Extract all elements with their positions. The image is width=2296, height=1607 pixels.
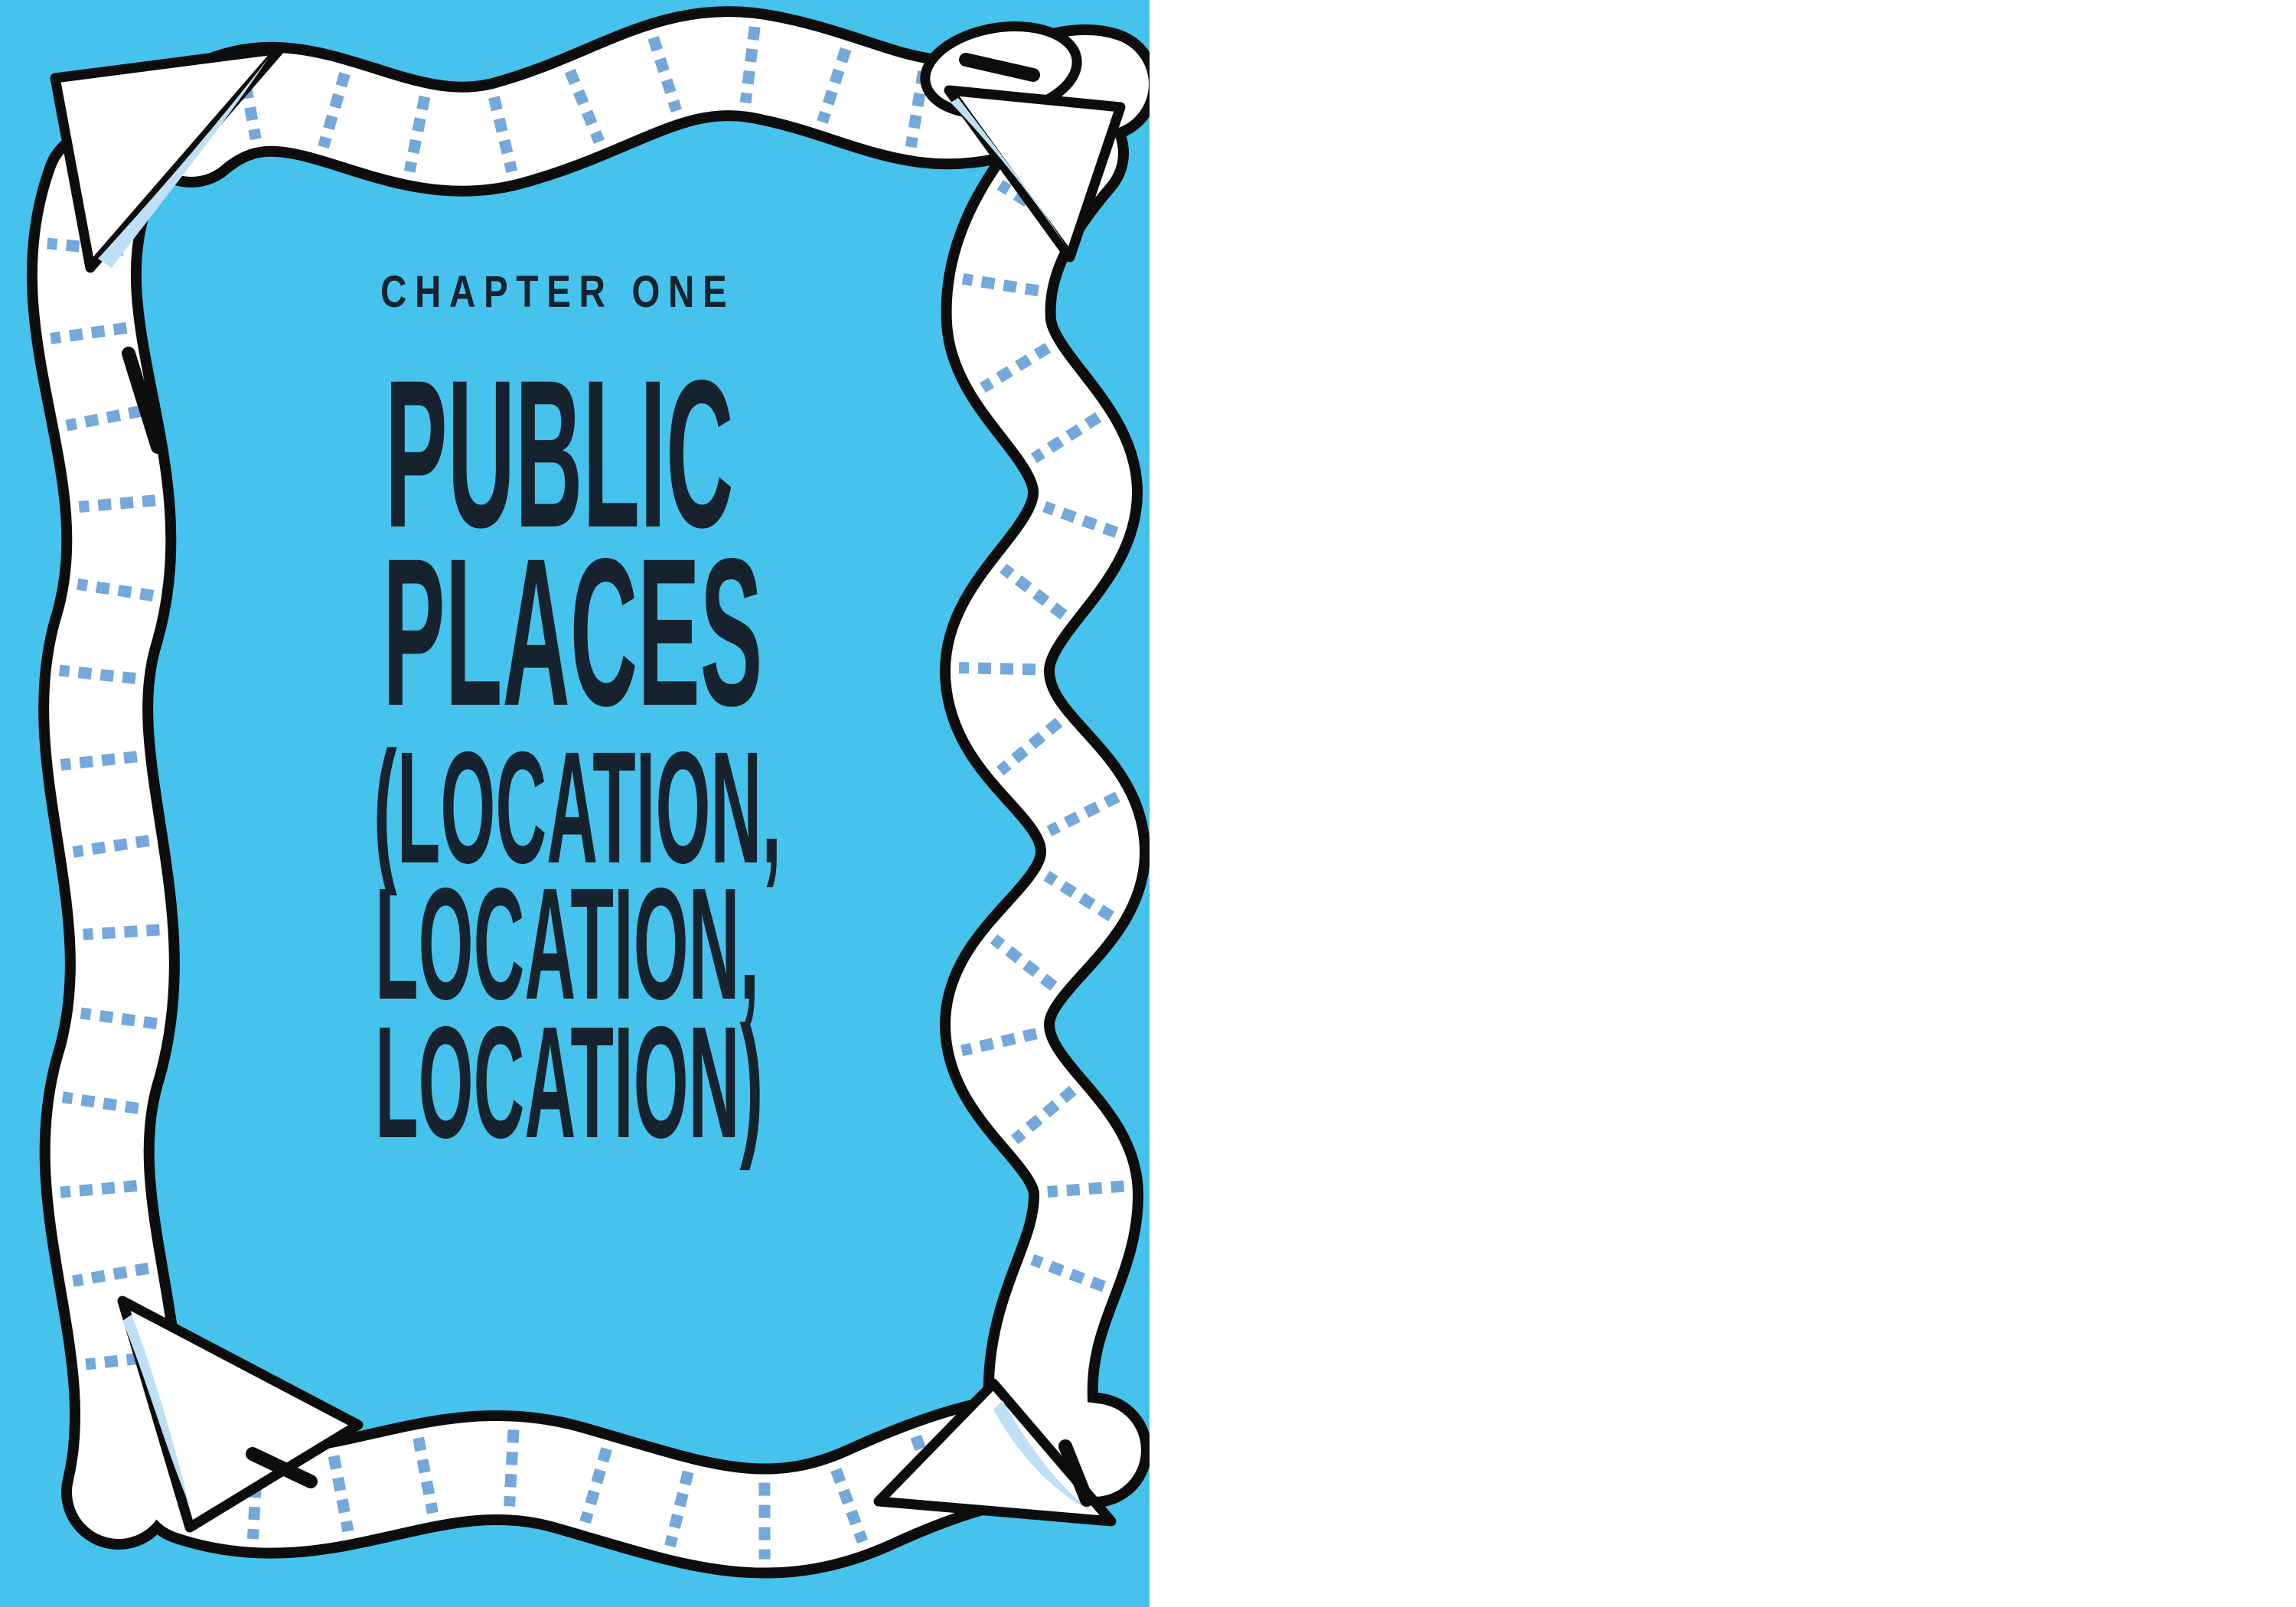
band-left <box>84 184 127 1492</box>
chapter-title-line-2: PLACES <box>383 527 762 738</box>
band-right <box>997 153 1093 1400</box>
book-spread: CHAPTER ONE PUBLIC PLACES (LOCATION, LOC… <box>0 0 2296 1607</box>
left-page: CHAPTER ONE PUBLIC PLACES (LOCATION, LOC… <box>0 0 1150 1607</box>
chapter-subtitle-line-3: LOCATION) <box>375 1003 763 1162</box>
chapter-kicker: CHAPTER ONE <box>380 270 735 315</box>
right-page: 17 OUT AND ABOUT One of the largest fact… <box>1150 0 2296 1607</box>
